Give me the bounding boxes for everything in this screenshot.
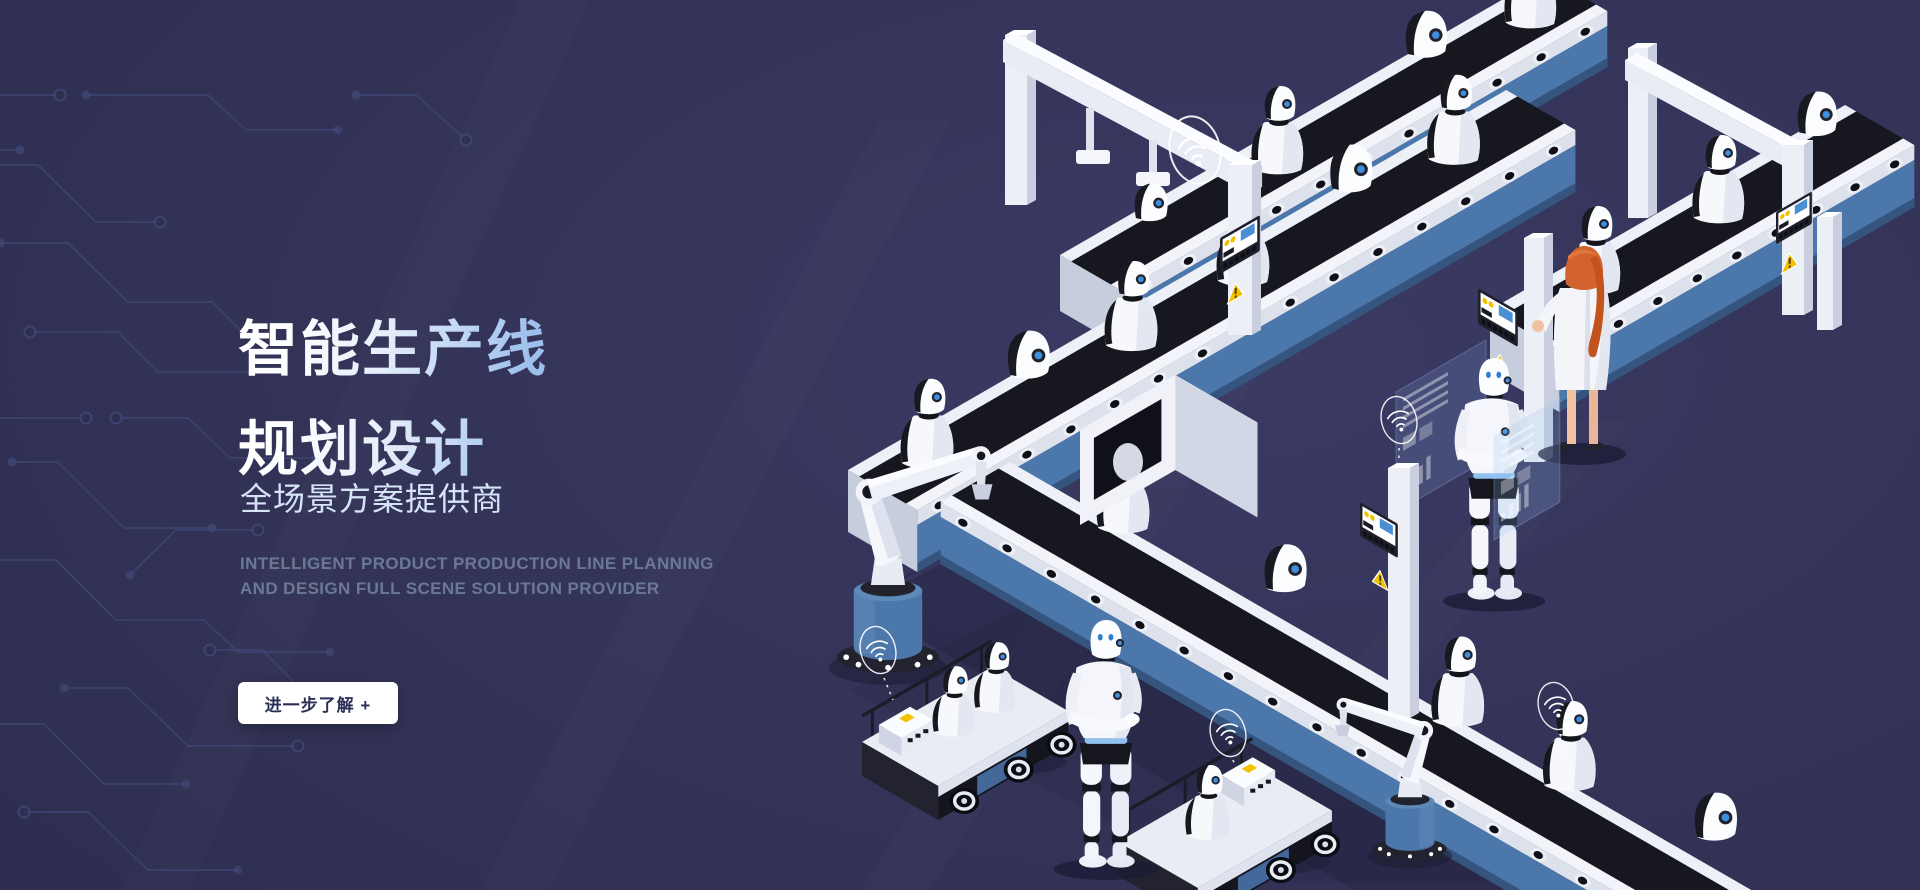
robot-bust [1008, 331, 1050, 379]
robot-bust [1543, 701, 1596, 791]
factory-scene [829, 0, 1914, 890]
hero-banner: 智能生产线 规划设计 全场景方案提供商 INTELLIGENT PRODUCT … [0, 0, 1920, 890]
robot-bust [1406, 11, 1447, 58]
robot-bust [901, 379, 954, 469]
caption: INTELLIGENT PRODUCT PRODUCTION LINE PLAN… [240, 551, 714, 601]
learn-more-button[interactable]: 进一步了解 + [238, 682, 398, 724]
robot-bust [1135, 184, 1168, 222]
robot-bust [1695, 793, 1737, 841]
robot-bust [1264, 544, 1306, 592]
caption-line-1: INTELLIGENT PRODUCT PRODUCTION LINE PLAN… [240, 551, 714, 576]
subtitle: 全场景方案提供商 [240, 474, 504, 520]
title-line-1: 智能生产线 [238, 300, 548, 400]
warning-icon [1372, 566, 1387, 590]
robot-bust [1504, 0, 1556, 28]
robot-bust [1431, 637, 1484, 727]
robot-bust [1692, 135, 1744, 223]
gantry-post [1388, 463, 1419, 718]
caption-line-2: AND DESIGN FULL SCENE SOLUTION PROVIDER [240, 576, 714, 601]
page-title: 智能生产线 规划设计 [238, 300, 548, 500]
robot-bust [1330, 144, 1372, 192]
gantry-post [1817, 212, 1842, 330]
robot-bust [1798, 91, 1837, 136]
gantry-beam [1003, 33, 1262, 194]
